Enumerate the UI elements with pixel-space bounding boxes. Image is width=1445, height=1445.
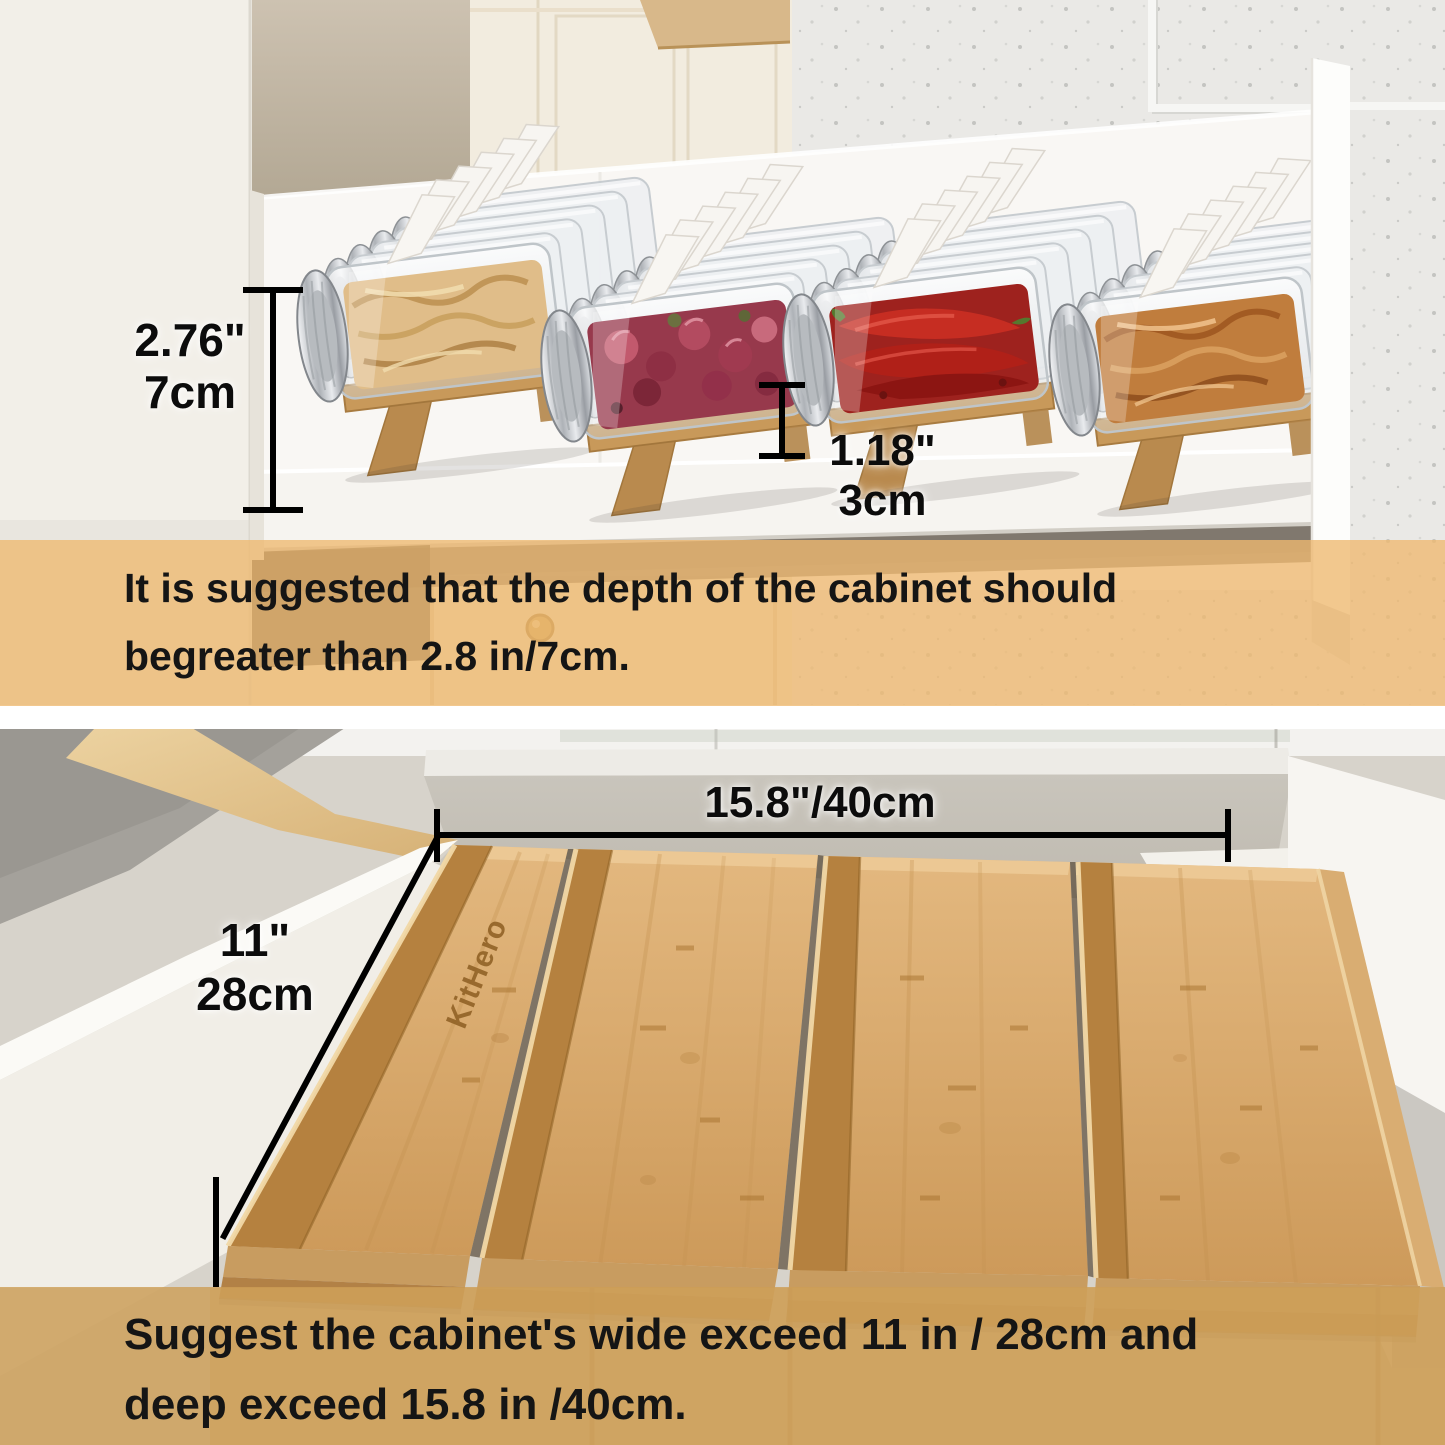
top-caption-line1: It is suggested that the depth of the ca… bbox=[0, 554, 1445, 622]
cabinet-recess-shadow bbox=[243, 0, 470, 198]
riser-height-metric: 3cm bbox=[795, 476, 970, 526]
top-caption-line2: begreater than 2.8 in/7cm. bbox=[0, 622, 1445, 690]
depth-value: 15.8"/40cm bbox=[635, 779, 1005, 827]
wood-trim bbox=[640, 0, 790, 48]
dimension-label-riser-height: 1.18" 3cm bbox=[795, 426, 970, 526]
riser-height-inches: 1.18" bbox=[795, 426, 970, 476]
bottom-caption-line2: deep exceed 15.8 in /40cm. bbox=[0, 1370, 1445, 1440]
bamboo-board-3 bbox=[786, 856, 1088, 1331]
width-inches: 11" bbox=[155, 913, 355, 967]
jar-height-metric: 7cm bbox=[100, 366, 280, 418]
dimension-label-width: 11" 28cm bbox=[155, 913, 355, 1021]
top-caption-banner: It is suggested that the depth of the ca… bbox=[0, 540, 1445, 706]
jar-height-inches: 2.76" bbox=[100, 314, 280, 366]
section-divider bbox=[0, 705, 1445, 729]
bottom-caption-banner: Suggest the cabinet's wide exceed 11 in … bbox=[0, 1287, 1445, 1445]
dimension-label-jar-height: 2.76" 7cm bbox=[100, 314, 280, 418]
bottom-caption-line1: Suggest the cabinet's wide exceed 11 in … bbox=[0, 1300, 1445, 1370]
product-infographic: 2.76" 7cm 1.18" 3cm It is suggested that… bbox=[0, 0, 1445, 1445]
width-metric: 28cm bbox=[155, 967, 355, 1021]
dimension-label-depth: 15.8"/40cm bbox=[635, 779, 1005, 827]
